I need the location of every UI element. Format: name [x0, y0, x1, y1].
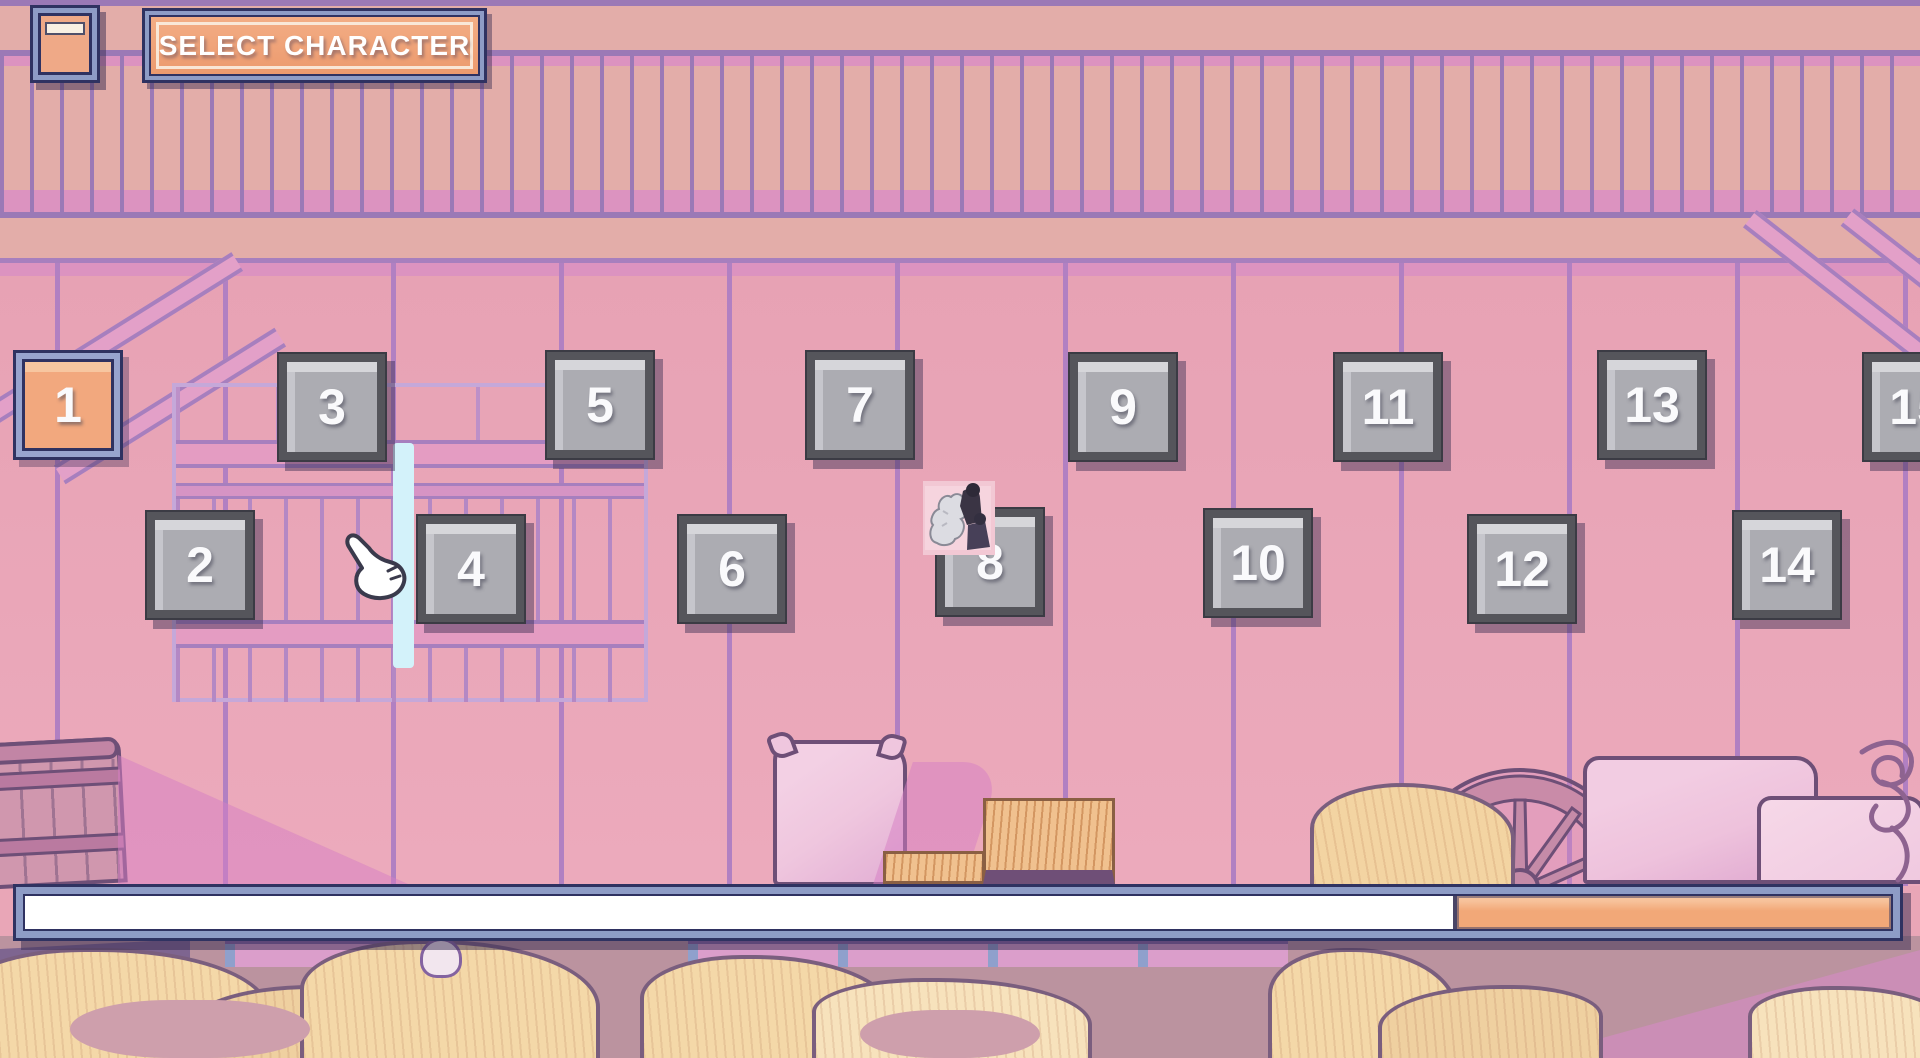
menu-button-panel [38, 13, 92, 75]
tile-number: 10 [1230, 538, 1286, 588]
character-tile-7[interactable]: 7 [805, 350, 915, 460]
hay-bale-large [983, 798, 1115, 884]
character-tile-2[interactable]: 2 [145, 510, 255, 620]
tile-number: 6 [718, 544, 746, 594]
character-tile-11[interactable]: 11 [1333, 352, 1443, 462]
tile-face: 6 [687, 524, 777, 614]
menu-button[interactable] [30, 5, 100, 83]
tile-face: 15 [1872, 362, 1920, 452]
title-plate: SELECT CHARACTER [142, 8, 487, 83]
tile-number: 4 [457, 544, 485, 594]
timer-bar-fill [1453, 896, 1892, 929]
rope-coil [1852, 732, 1920, 884]
tile-face: 1 [22, 359, 114, 451]
tile-face: 13 [1607, 360, 1697, 450]
character-tile-5[interactable]: 5 [545, 350, 655, 460]
hand-cursor-icon [343, 530, 421, 606]
character-tile-12[interactable]: 12 [1467, 514, 1577, 624]
tile-face: 7 [815, 360, 905, 450]
tile-face: 14 [1742, 520, 1832, 610]
character-tile-6[interactable]: 6 [677, 514, 787, 624]
tile-number: 13 [1624, 380, 1680, 430]
character-tile-3[interactable]: 3 [277, 352, 387, 462]
title-plate-inset: SELECT CHARACTER [156, 22, 473, 69]
tile-number: 2 [186, 540, 214, 590]
tile-face: 10 [1213, 518, 1303, 608]
timer-bar [13, 884, 1903, 941]
tile-face: 3 [287, 362, 377, 452]
tile-face: 2 [155, 520, 245, 610]
character-sprite-thumbnail [923, 481, 995, 555]
tile-number: 9 [1109, 382, 1137, 432]
character-tile-13[interactable]: 13 [1597, 350, 1707, 460]
hay-mound [1748, 986, 1920, 1058]
page-title: SELECT CHARACTER [159, 30, 471, 62]
character-tile-4[interactable]: 4 [416, 514, 526, 624]
tile-number: 5 [586, 380, 614, 430]
tile-face: 11 [1343, 362, 1433, 452]
character-tile-9[interactable]: 9 [1068, 352, 1178, 462]
tile-face: 5 [555, 360, 645, 450]
tile-number: 3 [318, 382, 346, 432]
tile-face: 4 [426, 524, 516, 614]
tile-number: 1 [54, 380, 82, 430]
barrel [0, 736, 128, 889]
character-tile-14[interactable]: 14 [1732, 510, 1842, 620]
pale-stone [420, 938, 462, 978]
tile-face: 12 [1477, 524, 1567, 614]
tile-face: 9 [1078, 362, 1168, 452]
hamburger-icon [45, 24, 85, 64]
game-screen: SELECT CHARACTER 123456789101112131415 [0, 0, 1920, 1058]
timer-bar-track [23, 894, 1893, 931]
character-tile-1[interactable]: 1 [13, 350, 123, 460]
title-plate-panel: SELECT CHARACTER [149, 15, 480, 76]
character-tile-15[interactable]: 15 [1862, 352, 1920, 462]
tile-number: 7 [846, 380, 874, 430]
wall-mid-band [0, 218, 1920, 258]
tile-number: 12 [1494, 544, 1550, 594]
tile-number: 11 [1362, 382, 1415, 432]
hay-patch [860, 1010, 1040, 1058]
hay-bale-small [883, 851, 985, 884]
tile-number: 14 [1759, 540, 1815, 590]
hay-patch [70, 1000, 310, 1058]
character-tile-10[interactable]: 10 [1203, 508, 1313, 618]
tile-number: 15 [1889, 382, 1920, 432]
